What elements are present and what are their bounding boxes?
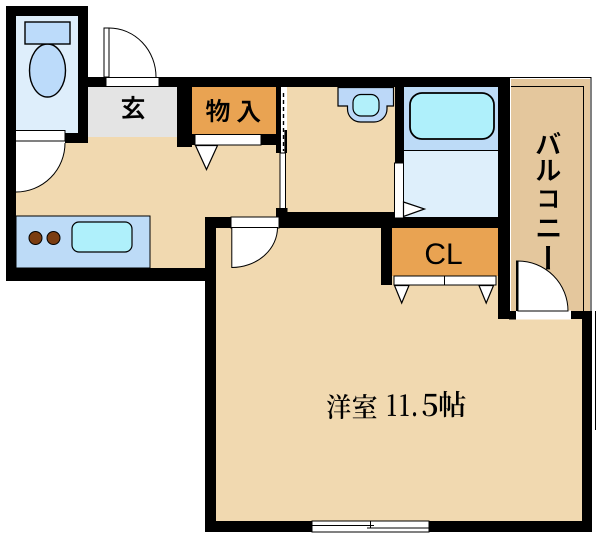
svg-text:CL: CL — [424, 238, 462, 271]
